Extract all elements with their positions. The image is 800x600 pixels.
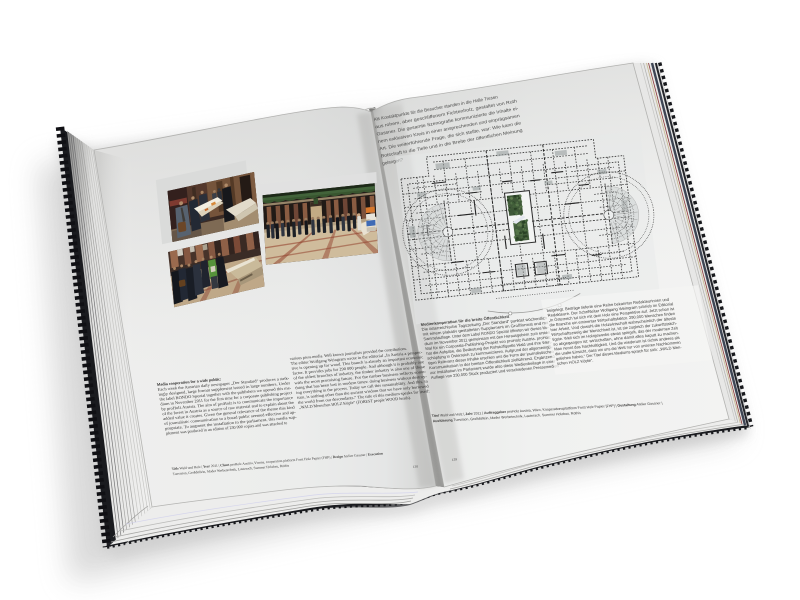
- svg-text:139: 139: [452, 457, 458, 462]
- svg-text:138: 138: [413, 464, 419, 469]
